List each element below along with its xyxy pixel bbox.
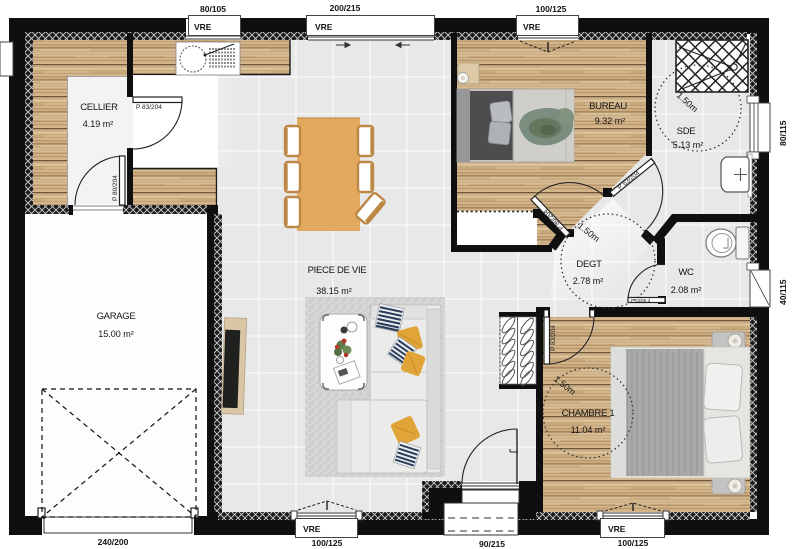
svg-text:WC: WC	[678, 267, 694, 278]
svg-text:BUREAU: BUREAU	[589, 101, 627, 112]
svg-text:P 83/204: P 83/204	[550, 325, 557, 351]
svg-text:SDE: SDE	[677, 126, 696, 137]
svg-text:2.78 m²: 2.78 m²	[573, 276, 604, 286]
svg-text:GARAGE: GARAGE	[97, 311, 136, 322]
svg-text:100/125: 100/125	[312, 538, 343, 548]
svg-text:15.00 m²: 15.00 m²	[98, 329, 134, 339]
svg-text:200/215: 200/215	[330, 3, 361, 13]
svg-text:38.15 m²: 38.15 m²	[316, 286, 352, 296]
svg-text:80/115: 80/115	[778, 120, 788, 146]
svg-text:100/125: 100/125	[536, 4, 567, 14]
svg-text:VRE: VRE	[194, 22, 212, 32]
svg-text:11.04 m²: 11.04 m²	[571, 425, 606, 435]
svg-text:9.32 m²: 9.32 m²	[595, 116, 626, 126]
svg-text:240/200: 240/200	[98, 537, 129, 547]
svg-text:4.19 m²: 4.19 m²	[83, 119, 114, 129]
svg-text:80/105: 80/105	[200, 4, 226, 14]
svg-text:DEGT: DEGT	[576, 259, 602, 270]
svg-text:40/115: 40/115	[778, 279, 788, 305]
svg-text:P 63/68 d: P 63/68 d	[631, 298, 651, 303]
svg-text:90/215: 90/215	[479, 539, 505, 549]
svg-text:P 80/204: P 80/204	[112, 175, 119, 201]
svg-text:PIECE DE VIE: PIECE DE VIE	[308, 265, 367, 276]
svg-text:P 83/204: P 83/204	[136, 104, 162, 111]
svg-text:CHAMBRE 1: CHAMBRE 1	[562, 408, 615, 419]
svg-text:VRE: VRE	[523, 22, 541, 32]
svg-text:VRE: VRE	[303, 524, 321, 534]
svg-text:VRE: VRE	[315, 22, 333, 32]
svg-text:VRE: VRE	[608, 524, 626, 534]
svg-text:CELLIER: CELLIER	[80, 102, 118, 113]
svg-text:100/125: 100/125	[618, 538, 649, 548]
svg-text:2.08 m²: 2.08 m²	[671, 285, 702, 295]
svg-text:5.13 m²: 5.13 m²	[673, 140, 704, 150]
